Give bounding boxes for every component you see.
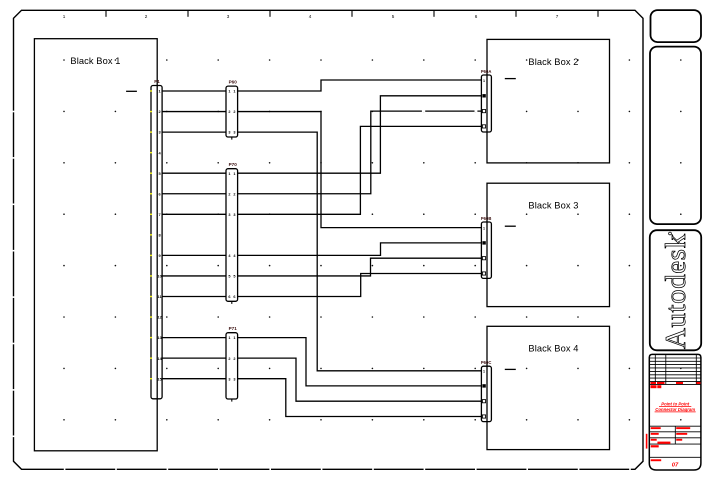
svg-text:2: 2 bbox=[228, 110, 230, 114]
svg-text:7: 7 bbox=[159, 212, 161, 217]
svg-text:1: 1 bbox=[483, 370, 485, 374]
svg-text:1: 1 bbox=[483, 226, 485, 230]
svg-text:P60C: P60C bbox=[481, 360, 491, 365]
svg-text:P60B: P60B bbox=[481, 216, 491, 221]
svg-text:3: 3 bbox=[233, 377, 235, 381]
svg-text:2: 2 bbox=[228, 192, 230, 196]
svg-text:5: 5 bbox=[228, 275, 230, 279]
svg-text:Connector Diagram: Connector Diagram bbox=[655, 407, 695, 412]
svg-text:3: 3 bbox=[228, 377, 230, 381]
svg-text:1: 1 bbox=[63, 14, 66, 19]
svg-text:1: 1 bbox=[228, 336, 230, 340]
svg-text:Black Box 2: Black Box 2 bbox=[528, 57, 578, 67]
svg-text:Black Box 3: Black Box 3 bbox=[528, 201, 578, 211]
svg-text:6: 6 bbox=[233, 295, 235, 299]
svg-text:P60A: P60A bbox=[481, 69, 491, 74]
svg-text:6: 6 bbox=[475, 14, 478, 19]
svg-text:3: 3 bbox=[233, 131, 235, 135]
svg-text:P70: P70 bbox=[229, 162, 238, 167]
svg-text:10: 10 bbox=[157, 274, 161, 279]
svg-text:1: 1 bbox=[483, 79, 485, 83]
svg-text:5: 5 bbox=[233, 275, 235, 279]
svg-text:P1: P1 bbox=[154, 79, 160, 84]
svg-text:2: 2 bbox=[145, 14, 148, 19]
svg-text:Black Box 4: Black Box 4 bbox=[528, 344, 578, 354]
svg-text:3: 3 bbox=[227, 14, 230, 19]
svg-text:6: 6 bbox=[228, 295, 230, 299]
svg-text:Autodesk: Autodesk bbox=[660, 233, 692, 349]
svg-text:3: 3 bbox=[228, 213, 230, 217]
svg-text:3: 3 bbox=[228, 131, 230, 135]
svg-text:P71: P71 bbox=[229, 326, 238, 331]
svg-text:Point to Point: Point to Point bbox=[661, 402, 689, 407]
svg-text:5: 5 bbox=[392, 14, 395, 19]
svg-text:2: 2 bbox=[233, 192, 235, 196]
svg-text:P60: P60 bbox=[229, 80, 238, 85]
svg-text:1: 1 bbox=[233, 336, 235, 340]
svg-text:7: 7 bbox=[556, 14, 559, 19]
svg-text:2: 2 bbox=[233, 357, 235, 361]
svg-text:1: 1 bbox=[233, 172, 235, 176]
svg-text:2: 2 bbox=[228, 357, 230, 361]
svg-text:1: 1 bbox=[228, 172, 230, 176]
svg-text:1: 1 bbox=[228, 90, 230, 94]
svg-text:2: 2 bbox=[233, 110, 235, 114]
svg-text:Black Box 1: Black Box 1 bbox=[70, 56, 120, 66]
svg-text:1: 1 bbox=[233, 90, 235, 94]
svg-text:4: 4 bbox=[309, 14, 312, 19]
svg-text:07: 07 bbox=[672, 462, 679, 468]
svg-text:3: 3 bbox=[233, 213, 235, 217]
